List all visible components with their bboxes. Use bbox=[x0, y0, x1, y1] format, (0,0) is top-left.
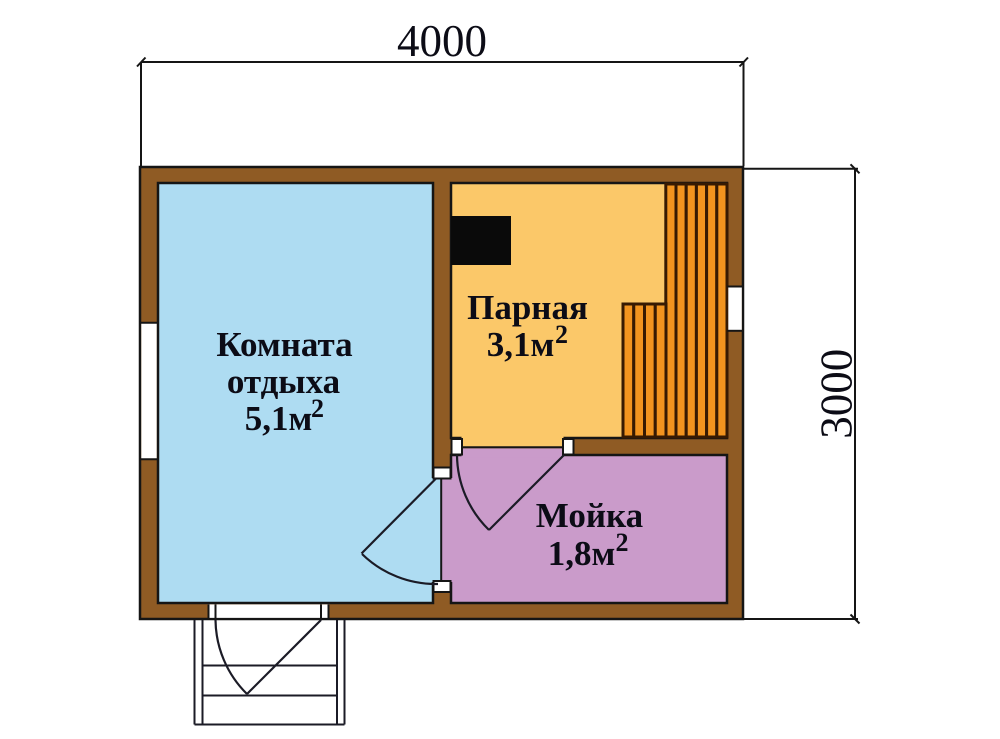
svg-text:Комната: Комната bbox=[216, 325, 352, 364]
svg-text:4000: 4000 bbox=[397, 16, 487, 66]
svg-text:5,1м: 5,1м bbox=[245, 399, 313, 438]
svg-text:2: 2 bbox=[311, 394, 324, 423]
svg-text:3,1м: 3,1м bbox=[487, 325, 555, 364]
svg-text:2: 2 bbox=[555, 320, 568, 349]
svg-text:3000: 3000 bbox=[812, 349, 862, 439]
svg-text:Парная: Парная bbox=[467, 288, 588, 327]
svg-text:1,8м: 1,8м bbox=[548, 534, 616, 573]
svg-text:2: 2 bbox=[616, 528, 629, 557]
